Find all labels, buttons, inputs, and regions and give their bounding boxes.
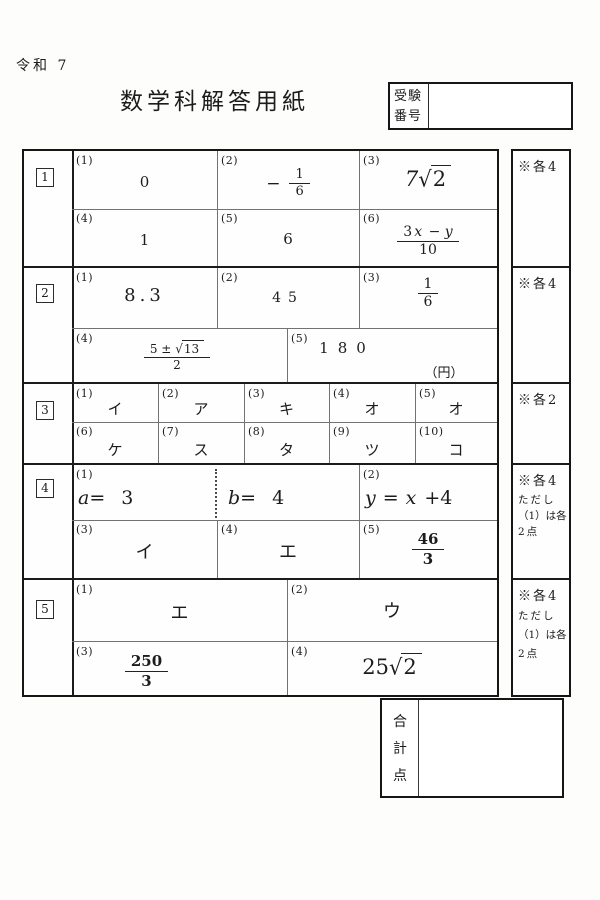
total-score-box: 合 計 点 xyxy=(380,698,564,798)
s2-answer-3: 16 xyxy=(359,277,497,311)
answers-table: 1 2 3 4 5 (1) (2) (3) (4) (5) (6) 0 −16 … xyxy=(22,149,499,697)
s3-answer-2: ア xyxy=(158,398,244,419)
s5-answer-4: 25√2 xyxy=(287,655,497,679)
fraction: 463 xyxy=(412,531,445,567)
s1-answer-1: 0 xyxy=(72,173,217,191)
radical-sign: √ xyxy=(389,655,402,680)
s5-answer-3: 2503 xyxy=(79,653,214,689)
page-title: 数学科解答用紙 xyxy=(120,82,309,116)
s4-answer-3: イ xyxy=(72,538,217,564)
s3-q9-label: (9) xyxy=(333,425,350,438)
s4-answer-4: エ xyxy=(217,538,359,564)
section-divider xyxy=(24,578,497,580)
section-2-number: 2 xyxy=(36,284,54,303)
dotted-sub-divider xyxy=(215,469,217,518)
s5-answer-2: ウ xyxy=(287,597,497,623)
s3-answer-9: ツ xyxy=(329,439,415,460)
s4-q3-label: (3) xyxy=(76,523,93,536)
s4-answer-1b: b=4 xyxy=(228,487,353,509)
section-divider xyxy=(24,463,497,465)
s1-answer-5: 6 xyxy=(217,230,359,248)
row-divider xyxy=(72,422,497,423)
s3-q6-label: (6) xyxy=(76,425,93,438)
section-4-number: 4 xyxy=(36,479,54,498)
section-3-number: 3 xyxy=(36,401,54,420)
s1-answer-2: −16 xyxy=(217,168,359,200)
s2-q2-label: (2) xyxy=(221,271,238,284)
s2-answer-5-unit: （円） xyxy=(404,362,484,381)
s3-answer-1: イ xyxy=(72,398,158,419)
s1-q3-label: (3) xyxy=(363,154,380,167)
section-1-number: 1 xyxy=(36,168,54,187)
s5-points-note: ※各4 ただし （1）は各 2点 xyxy=(513,580,569,664)
s4-points-note: ※各4 ただし （1）は各 2点 xyxy=(513,465,569,540)
row-divider xyxy=(72,641,497,642)
total-score-field[interactable] xyxy=(420,700,562,796)
examinee-number-field[interactable] xyxy=(430,84,571,128)
s4-q1-label: (1) xyxy=(76,468,93,481)
s3-answer-4: オ xyxy=(329,398,415,419)
s3-answer-5: オ xyxy=(415,398,497,419)
s3-answer-7: ス xyxy=(158,439,244,460)
examinee-label-line1: 受験 xyxy=(394,87,428,107)
s3-answer-8: タ xyxy=(244,439,329,460)
grading-notes-column: ※各4 ※各4 ※各2 ※各4 ただし （1）は各 2点 ※各4 ただし （1）… xyxy=(511,149,571,697)
s5-answer-1: エ xyxy=(72,599,287,625)
s2-answer-5: 180 xyxy=(272,339,422,357)
s3-answer-10: コ xyxy=(415,439,497,460)
row-divider xyxy=(72,328,497,329)
s1-q1-label: (1) xyxy=(76,154,93,167)
section-divider xyxy=(24,266,497,268)
fraction: 16 xyxy=(289,168,309,200)
s4-q2-label: (2) xyxy=(363,468,380,481)
s4-q4-label: (4) xyxy=(221,523,238,536)
s5-q1-label: (1) xyxy=(76,583,93,596)
examinee-number-box: 受験 番号 xyxy=(388,82,573,130)
s2-answer-1: 8.3 xyxy=(72,285,217,306)
s3-answer-3: キ xyxy=(244,398,329,419)
s3-q8-label: (8) xyxy=(248,425,265,438)
s2-points-note: ※各4 xyxy=(513,268,569,292)
s1-q6-label: (6) xyxy=(363,212,380,225)
s3-q7-label: (7) xyxy=(162,425,179,438)
examinee-number-label: 受験 番号 xyxy=(390,84,429,128)
s2-answer-2: 45 xyxy=(217,290,359,306)
examinee-label-line2: 番号 xyxy=(394,107,428,127)
total-score-label: 合 計 点 xyxy=(382,700,419,796)
s1-q4-label: (4) xyxy=(76,212,93,225)
minus-sign: − xyxy=(266,174,280,194)
fraction: 3x − y 10 xyxy=(397,225,458,259)
s4-answer-5: 463 xyxy=(359,531,497,567)
s3-q10-label: (10) xyxy=(419,425,444,438)
fraction: 16 xyxy=(418,277,439,311)
s4-answer-1a: a=3 xyxy=(78,487,208,509)
s1-answer-6: 3x − y 10 xyxy=(359,225,497,259)
s5-q2-label: (2) xyxy=(291,583,308,596)
section-5-number: 5 xyxy=(36,600,54,619)
s1-answer-4: 1 xyxy=(72,231,217,249)
row-divider xyxy=(72,209,497,210)
era-label: 令和 7 xyxy=(16,55,69,75)
radical-sign: √ xyxy=(175,343,183,357)
s4-answer-2: y=x+4 xyxy=(365,487,495,509)
radical-sign: √ xyxy=(418,167,431,192)
s3-answer-6: ケ xyxy=(72,439,158,460)
s3-points-note: ※各2 xyxy=(513,384,569,408)
s1-q2-label: (2) xyxy=(221,154,238,167)
s1-points-note: ※各4 xyxy=(513,151,569,175)
row-divider xyxy=(72,520,497,521)
s1-answer-3: 7√2 xyxy=(359,167,497,191)
fraction: 5 ± √13 2 xyxy=(144,343,210,372)
fraction: 2503 xyxy=(125,653,168,689)
answer-sheet-page: 令和 7 数学科解答用紙 受験 番号 xyxy=(0,0,600,900)
section-divider xyxy=(24,382,497,384)
s2-q1-label: (1) xyxy=(76,271,93,284)
s2-answer-4: 5 ± √13 2 xyxy=(72,343,282,372)
s1-q5-label: (5) xyxy=(221,212,238,225)
